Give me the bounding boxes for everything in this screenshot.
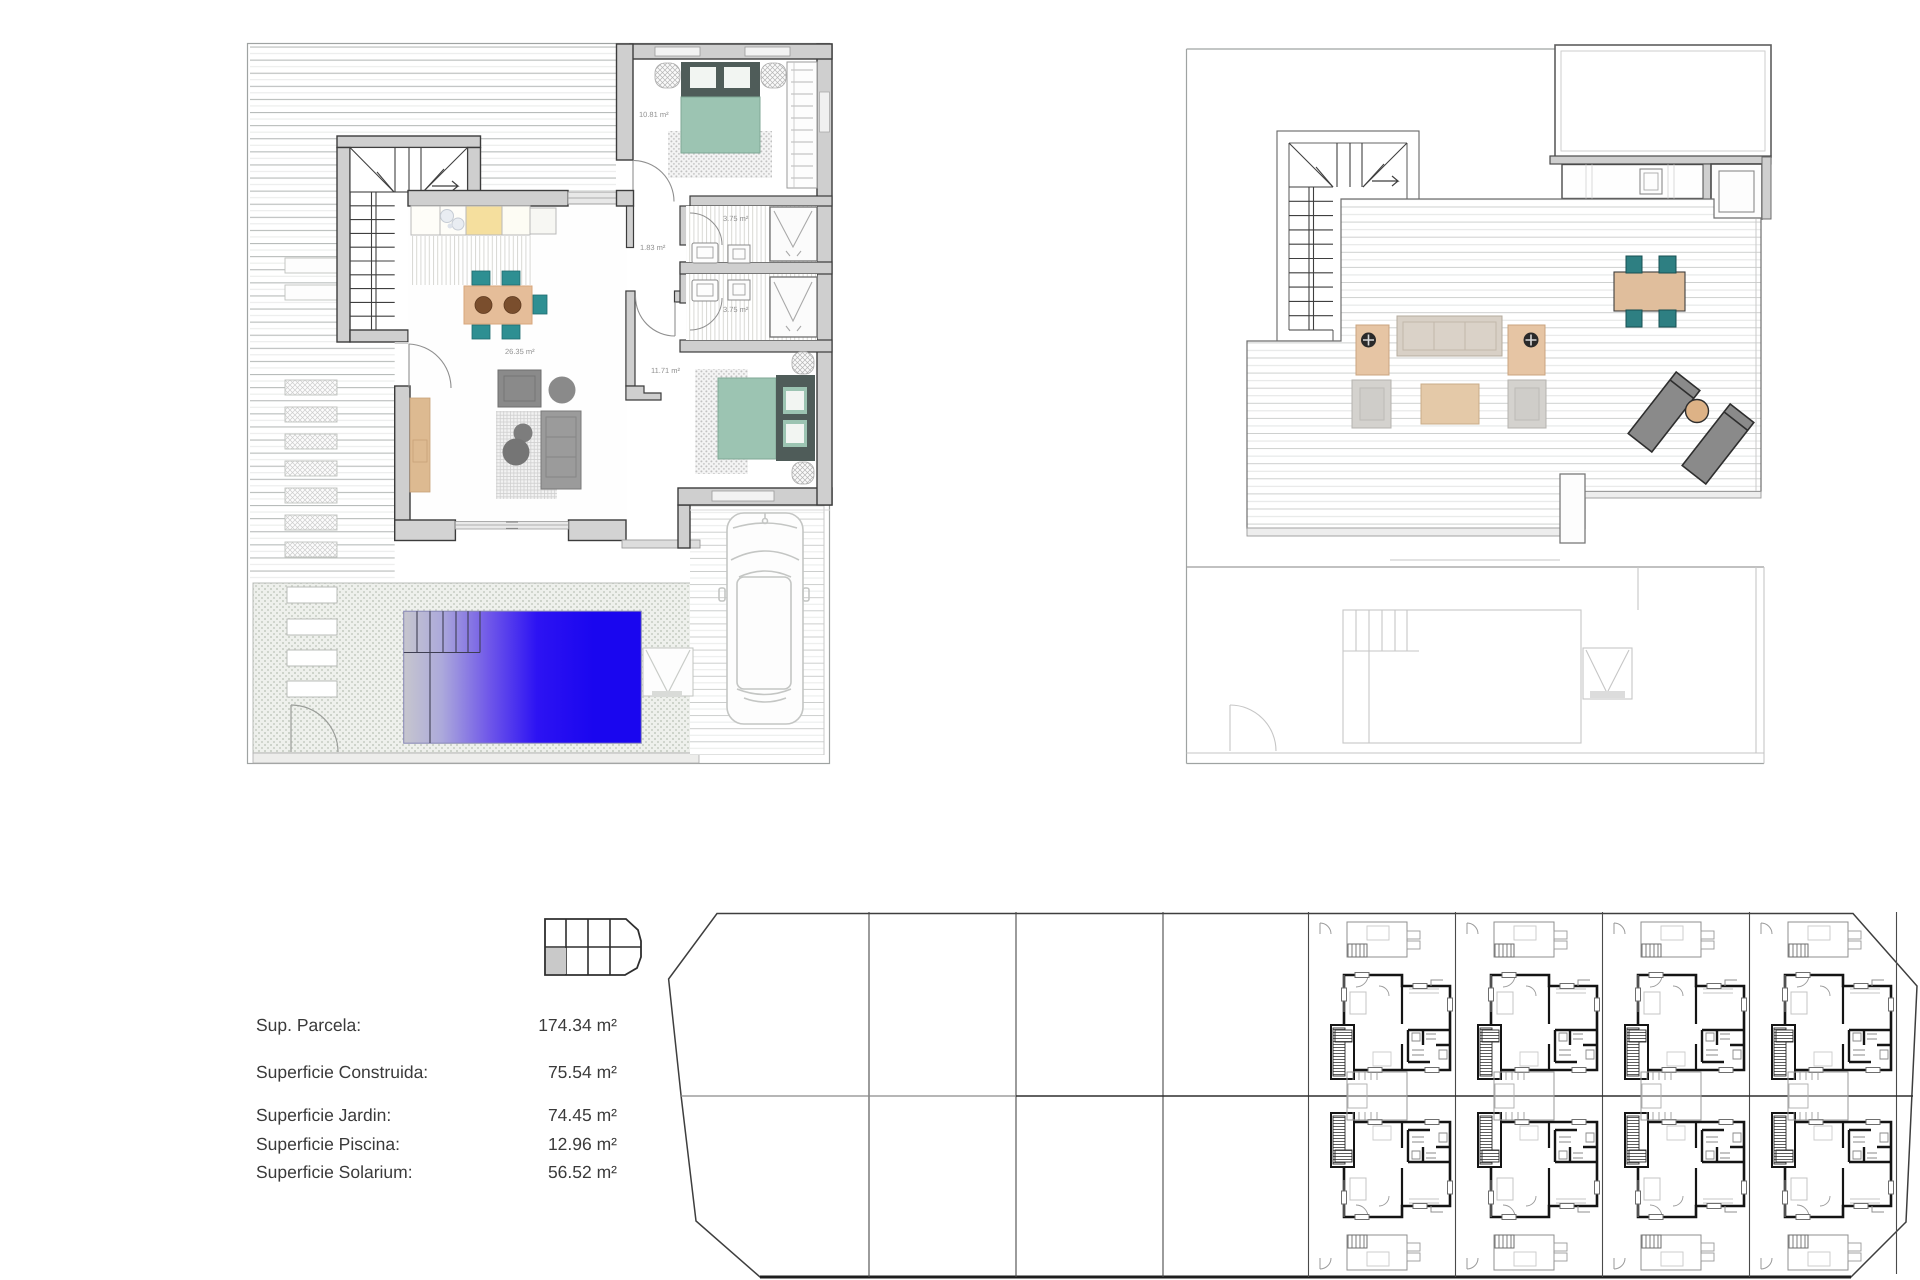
svg-text:12.96 m²: 12.96 m² [548, 1134, 617, 1154]
svg-text:1.83 m²: 1.83 m² [640, 243, 666, 252]
svg-text:3.75 m²: 3.75 m² [723, 214, 749, 223]
svg-text:Sup. Parcela:: Sup. Parcela: [256, 1015, 361, 1035]
svg-text:56.52 m²: 56.52 m² [548, 1162, 617, 1182]
svg-text:Superficie Piscina:: Superficie Piscina: [256, 1134, 400, 1154]
svg-text:Superficie Construida:: Superficie Construida: [256, 1062, 428, 1082]
svg-text:75.54 m²: 75.54 m² [548, 1062, 617, 1082]
svg-text:11.71 m²: 11.71 m² [651, 366, 681, 375]
svg-text:Superficie Solarium:: Superficie Solarium: [256, 1162, 413, 1182]
svg-text:3.75 m²: 3.75 m² [723, 305, 749, 314]
svg-text:Superficie Jardin:: Superficie Jardin: [256, 1105, 391, 1125]
svg-text:74.45 m²: 74.45 m² [548, 1105, 617, 1125]
svg-text:10.81 m²: 10.81 m² [639, 110, 669, 119]
svg-text:174.34 m²: 174.34 m² [538, 1015, 617, 1035]
svg-text:26.35 m²: 26.35 m² [505, 347, 535, 356]
